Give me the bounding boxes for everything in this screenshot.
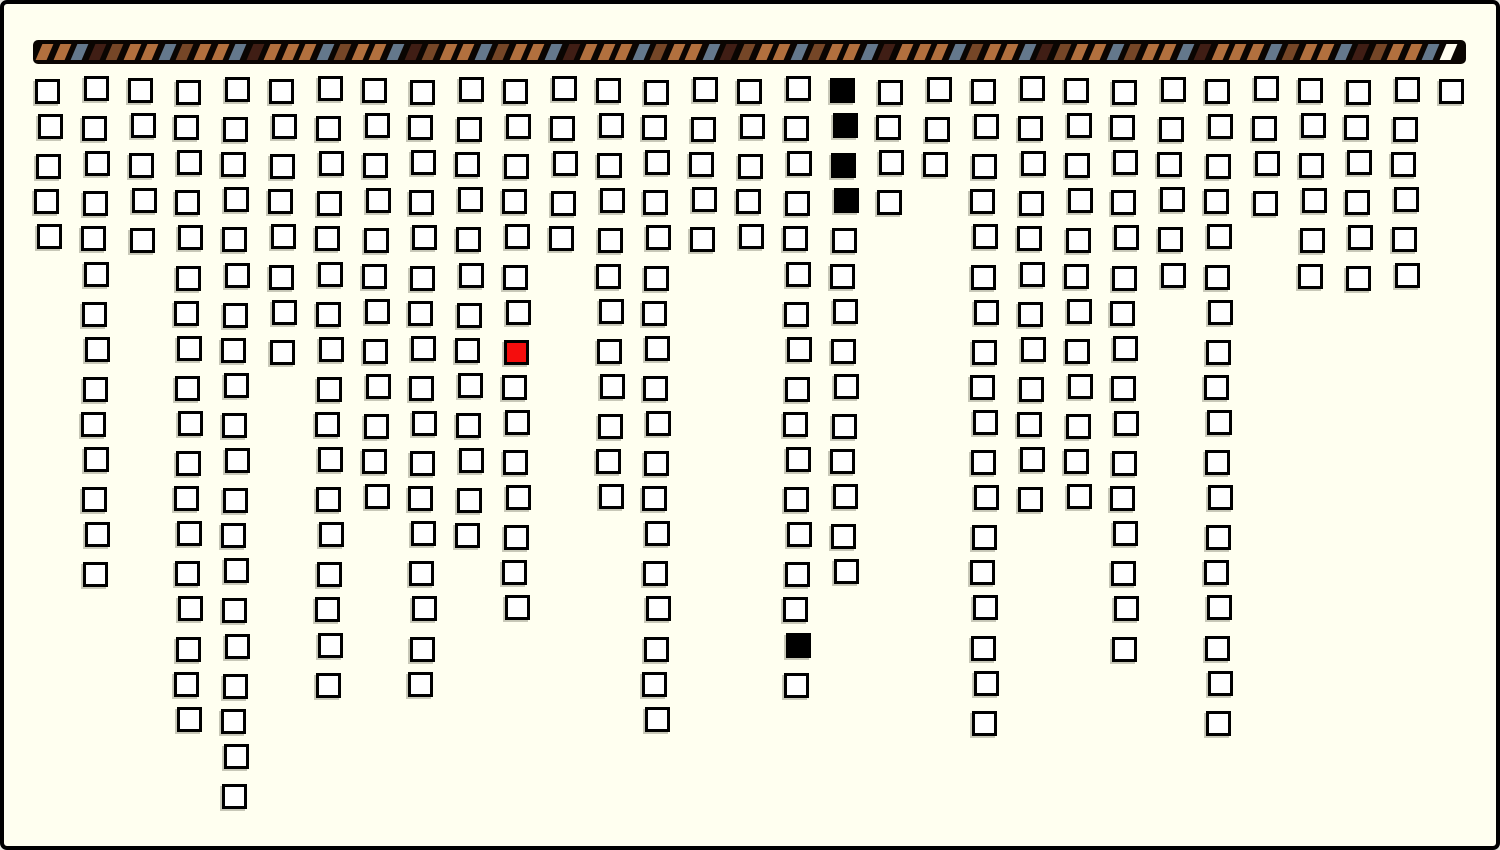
- block-cell: [502, 560, 527, 585]
- block-cell: [318, 76, 343, 101]
- block-cell: [221, 523, 246, 548]
- block-cell: [458, 373, 483, 398]
- block-cell: [176, 266, 201, 291]
- block-cell: [972, 711, 997, 736]
- block-cell: [642, 301, 667, 326]
- block-cell: [599, 299, 624, 324]
- block-cell: [504, 154, 529, 179]
- block-cell: [1206, 711, 1231, 736]
- block-cell: [1206, 525, 1231, 550]
- block-cell: [1205, 265, 1230, 290]
- block-cell: [642, 672, 667, 697]
- block-cell: [600, 188, 625, 213]
- progress-stripe: [983, 44, 1000, 60]
- block-cell: [1208, 485, 1233, 510]
- block-cell: [1112, 637, 1137, 662]
- progress-stripe: [299, 44, 316, 60]
- block-cell: [784, 116, 809, 141]
- block-cell: [174, 301, 199, 326]
- block-cell: [175, 561, 200, 586]
- progress-stripe: [562, 44, 579, 60]
- block-cell: [177, 521, 202, 546]
- block-cell: [1252, 116, 1277, 141]
- block-cell: [832, 228, 857, 253]
- block-cell: [596, 264, 621, 289]
- block-cell: [365, 299, 390, 324]
- block-cell: [317, 191, 342, 216]
- progress-stripe: [1071, 44, 1088, 60]
- block-cell: [787, 522, 812, 547]
- progress-stripe: [229, 44, 246, 60]
- block-cell: [1065, 339, 1090, 364]
- block-cell: [224, 373, 249, 398]
- block-cell: [1114, 225, 1139, 250]
- block-cell: [1110, 301, 1135, 326]
- block-cell: [1112, 266, 1137, 291]
- progress-stripe: [194, 44, 211, 60]
- block-cell: [1255, 151, 1280, 176]
- progress-stripe: [1247, 44, 1264, 60]
- block-cell: [1066, 228, 1091, 253]
- progress-stripe: [1404, 44, 1421, 60]
- block-cell: [549, 226, 574, 251]
- block-cell: [457, 117, 482, 142]
- progress-stripe: [948, 44, 965, 60]
- block-cell: [457, 303, 482, 328]
- block-cell: [364, 228, 389, 253]
- block-cell: [35, 79, 60, 104]
- block-cell: [363, 339, 388, 364]
- block-cell: [970, 189, 995, 214]
- block-cell: [784, 302, 809, 327]
- block-cell: [1113, 336, 1138, 361]
- progress-stripe: [36, 44, 53, 60]
- block-cell: [878, 80, 903, 105]
- block-cell: [787, 337, 812, 362]
- block-cell-filled: [831, 153, 856, 178]
- block-cell: [85, 151, 110, 176]
- block-cell: [315, 597, 340, 622]
- block-cell: [1111, 376, 1136, 401]
- block-cell: [1345, 190, 1370, 215]
- block-cell: [1021, 151, 1046, 176]
- block-cell: [1021, 337, 1046, 362]
- block-cell: [409, 376, 434, 401]
- block-cell: [456, 227, 481, 252]
- block-cell: [971, 450, 996, 475]
- block-cell-filled: [833, 113, 858, 138]
- progress-stripe: [773, 44, 790, 60]
- block-cell: [1111, 561, 1136, 586]
- block-cell: [1161, 263, 1186, 288]
- block-cell: [317, 562, 342, 587]
- progress-stripe: [53, 44, 70, 60]
- block-cell: [1302, 188, 1327, 213]
- block-cell: [504, 525, 529, 550]
- block-cell: [366, 188, 391, 213]
- block-cell: [831, 524, 856, 549]
- block-cell: [1253, 191, 1278, 216]
- block-cell: [268, 189, 293, 214]
- block-cell: [1068, 188, 1093, 213]
- app-frame: [0, 0, 1500, 850]
- block-cell: [36, 154, 61, 179]
- block-cell: [1346, 266, 1371, 291]
- block-cell: [174, 115, 199, 140]
- progress-stripe: [896, 44, 913, 60]
- block-cell: [972, 154, 997, 179]
- progress-stripe: [1282, 44, 1299, 60]
- progress-stripe: [597, 44, 614, 60]
- progress-stripe: [1422, 44, 1439, 60]
- block-cell: [971, 636, 996, 661]
- block-cell: [412, 225, 437, 250]
- block-cell: [596, 78, 621, 103]
- block-cell: [82, 116, 107, 141]
- block-cell: [644, 451, 669, 476]
- block-cell: [408, 486, 433, 511]
- block-cell: [319, 337, 344, 362]
- block-cell: [831, 339, 856, 364]
- progress-stripe: [545, 44, 562, 60]
- block-cell: [599, 484, 624, 509]
- block-cell: [1064, 264, 1089, 289]
- block-cell: [178, 596, 203, 621]
- block-cell: [642, 486, 667, 511]
- block-cell: [84, 76, 109, 101]
- block-cell: [551, 191, 576, 216]
- block-cell: [1017, 226, 1042, 251]
- progress-stripe: [387, 44, 404, 60]
- block-cell: [738, 154, 763, 179]
- block-cell: [973, 410, 998, 435]
- block-cell-filled: [786, 633, 811, 658]
- progress-bar: [33, 40, 1466, 64]
- block-cell: [225, 448, 250, 473]
- block-cell: [877, 190, 902, 215]
- progress-stripe: [457, 44, 474, 60]
- block-cell: [1159, 117, 1184, 142]
- progress-stripe: [931, 44, 948, 60]
- progress-stripe: [211, 44, 228, 60]
- block-cell: [1205, 636, 1230, 661]
- block-cell: [503, 265, 528, 290]
- block-cell: [785, 377, 810, 402]
- block-cell: [974, 671, 999, 696]
- block-cell: [1067, 299, 1092, 324]
- progress-stripe: [1141, 44, 1158, 60]
- block-cell: [973, 595, 998, 620]
- block-cell: [1110, 486, 1135, 511]
- block-cell: [410, 80, 435, 105]
- block-cell: [1112, 80, 1137, 105]
- block-cell: [785, 562, 810, 587]
- block-cell: [1114, 596, 1139, 621]
- block-cell: [643, 190, 668, 215]
- block-cell: [646, 596, 671, 621]
- block-cell: [600, 374, 625, 399]
- block-cell: [411, 521, 436, 546]
- block-cell: [81, 412, 106, 437]
- block-cell: [1020, 447, 1045, 472]
- block-cell: [225, 263, 250, 288]
- block-cell: [174, 672, 199, 697]
- block-cell: [1205, 79, 1230, 104]
- block-cell: [1207, 410, 1232, 435]
- block-cell: [645, 521, 670, 546]
- progress-stripe: [685, 44, 702, 60]
- block-cell: [599, 113, 624, 138]
- block-cell: [176, 637, 201, 662]
- block-cell: [598, 228, 623, 253]
- block-cell: [37, 224, 62, 249]
- block-cell: [1394, 187, 1419, 212]
- block-cell: [1208, 300, 1233, 325]
- progress-stripe: [1387, 44, 1404, 60]
- progress-stripe: [474, 44, 491, 60]
- progress-stripe: [702, 44, 719, 60]
- block-cell: [455, 338, 480, 363]
- block-cell: [923, 152, 948, 177]
- block-cell: [315, 226, 340, 251]
- block-cell: [221, 152, 246, 177]
- progress-stripe: [71, 44, 88, 60]
- block-cell: [644, 80, 669, 105]
- block-cell: [1018, 302, 1043, 327]
- block-cell: [1347, 150, 1372, 175]
- block-cell: [459, 263, 484, 288]
- block-cell: [175, 376, 200, 401]
- block-cell: [222, 784, 247, 809]
- block-cell: [408, 301, 433, 326]
- block-cell: [177, 707, 202, 732]
- progress-remainder-stripe: [1440, 44, 1457, 60]
- progress-stripe: [316, 44, 333, 60]
- block-cell: [365, 113, 390, 138]
- block-cell: [1300, 228, 1325, 253]
- block-cell: [502, 189, 527, 214]
- progress-stripe: [650, 44, 667, 60]
- block-cell: [973, 224, 998, 249]
- block-cell: [1301, 113, 1326, 138]
- block-cell: [1391, 152, 1416, 177]
- block-cell: [412, 596, 437, 621]
- block-cell: [223, 303, 248, 328]
- progress-stripe: [1352, 44, 1369, 60]
- block-cell: [971, 79, 996, 104]
- progress-stripe: [439, 44, 456, 60]
- block-cell: [409, 190, 434, 215]
- block-cell: [222, 227, 247, 252]
- block-cell-highlight: [504, 340, 529, 365]
- block-cell: [1064, 78, 1089, 103]
- block-cell: [178, 411, 203, 436]
- block-cell: [316, 116, 341, 141]
- progress-stripe: [1124, 44, 1141, 60]
- progress-stripe: [492, 44, 509, 60]
- block-cell: [269, 79, 294, 104]
- block-cell: [225, 77, 250, 102]
- block-cell: [693, 77, 718, 102]
- block-cell: [85, 337, 110, 362]
- block-cell: [502, 375, 527, 400]
- block-cell: [1204, 189, 1229, 214]
- block-cell: [316, 673, 341, 698]
- progress-stripe: [790, 44, 807, 60]
- block-cell: [783, 226, 808, 251]
- block-cell: [456, 413, 481, 438]
- block-cell: [365, 484, 390, 509]
- block-cell: [1346, 80, 1371, 105]
- block-cell: [83, 191, 108, 216]
- block-cell: [972, 340, 997, 365]
- block-cell: [550, 116, 575, 141]
- block-cell: [645, 150, 670, 175]
- progress-stripe: [580, 44, 597, 60]
- block-cell: [130, 228, 155, 253]
- block-cell: [645, 336, 670, 361]
- progress-stripe: [860, 44, 877, 60]
- block-cell: [1205, 450, 1230, 475]
- block-cell: [1067, 113, 1092, 138]
- progress-stripe: [913, 44, 930, 60]
- progress-stripe: [615, 44, 632, 60]
- block-cell: [830, 449, 855, 474]
- block-cell: [362, 264, 387, 289]
- block-cell: [1299, 153, 1324, 178]
- block-cell: [1019, 377, 1044, 402]
- block-cell: [1112, 451, 1137, 476]
- block-cell: [1017, 412, 1042, 437]
- block-cell: [1395, 77, 1420, 102]
- block-cell: [223, 674, 248, 699]
- progress-stripe: [527, 44, 544, 60]
- block-cell: [786, 262, 811, 287]
- progress-stripe: [88, 44, 105, 60]
- block-cell: [876, 115, 901, 140]
- progress-stripe: [1106, 44, 1123, 60]
- progress-stripe: [1211, 44, 1228, 60]
- block-cell: [833, 299, 858, 324]
- block-cell: [643, 561, 668, 586]
- block-cell: [272, 300, 297, 325]
- screenshot-stage: [0, 0, 1500, 850]
- block-cell: [1068, 374, 1093, 399]
- block-cell: [223, 117, 248, 142]
- block-cell: [832, 414, 857, 439]
- block-cell: [787, 151, 812, 176]
- block-cell: [834, 559, 859, 584]
- block-cell: [132, 188, 157, 213]
- block-cell: [318, 262, 343, 287]
- block-cell: [927, 77, 952, 102]
- block-cell: [38, 114, 63, 139]
- progress-stripe: [1229, 44, 1246, 60]
- block-cell: [83, 562, 108, 587]
- block-cell: [737, 79, 762, 104]
- block-cell: [1206, 154, 1231, 179]
- progress-stripe: [264, 44, 281, 60]
- block-cell: [177, 336, 202, 361]
- block-cell: [412, 411, 437, 436]
- block-cell: [644, 637, 669, 662]
- block-cell: [692, 187, 717, 212]
- block-cell: [221, 338, 246, 363]
- block-cell: [362, 78, 387, 103]
- progress-stripe: [509, 44, 526, 60]
- block-cell: [270, 154, 295, 179]
- progress-stripe: [404, 44, 421, 60]
- block-cell: [642, 115, 667, 140]
- block-cell: [505, 224, 530, 249]
- progress-stripe: [351, 44, 368, 60]
- block-cell: [129, 153, 154, 178]
- block-cell: [970, 375, 995, 400]
- block-cell: [1111, 190, 1136, 215]
- block-cell-filled: [834, 188, 859, 213]
- block-cell: [1064, 449, 1089, 474]
- block-cell: [970, 560, 995, 585]
- block-cell: [506, 300, 531, 325]
- progress-stripe: [1194, 44, 1211, 60]
- block-cell: [364, 414, 389, 439]
- progress-stripe: [158, 44, 175, 60]
- block-cell: [834, 374, 859, 399]
- block-cell: [1208, 114, 1233, 139]
- block-cell: [459, 448, 484, 473]
- progress-stripe: [632, 44, 649, 60]
- block-cell: [316, 302, 341, 327]
- block-cell: [318, 447, 343, 472]
- block-cell: [1207, 595, 1232, 620]
- block-cell: [175, 190, 200, 215]
- block-cell: [455, 523, 480, 548]
- block-cell: [689, 152, 714, 177]
- progress-stripe: [808, 44, 825, 60]
- block-cell: [553, 151, 578, 176]
- block-cell: [363, 153, 388, 178]
- block-cell: [174, 486, 199, 511]
- block-cell: [971, 265, 996, 290]
- block-cell: [1157, 152, 1182, 177]
- block-cell: [1206, 340, 1231, 365]
- block-cell: [318, 633, 343, 658]
- block-cell: [319, 522, 344, 547]
- progress-stripe: [843, 44, 860, 60]
- block-cell: [362, 449, 387, 474]
- block-cell: [1019, 191, 1044, 216]
- block-cell: [84, 447, 109, 472]
- progress-stripe: [422, 44, 439, 60]
- block-cell: [409, 561, 434, 586]
- progress-stripe: [720, 44, 737, 60]
- progress-stripe: [281, 44, 298, 60]
- block-cell: [830, 264, 855, 289]
- block-cell: [879, 150, 904, 175]
- block-cell: [178, 225, 203, 250]
- block-cell: [739, 224, 764, 249]
- block-cell: [316, 487, 341, 512]
- block-cell: [221, 709, 246, 734]
- block-cell: [597, 153, 622, 178]
- progress-stripe: [1264, 44, 1281, 60]
- block-cell: [643, 376, 668, 401]
- block-cell: [1113, 521, 1138, 546]
- block-cell: [505, 410, 530, 435]
- progress-stripe: [1317, 44, 1334, 60]
- block-cell: [128, 78, 153, 103]
- block-cell: [972, 525, 997, 550]
